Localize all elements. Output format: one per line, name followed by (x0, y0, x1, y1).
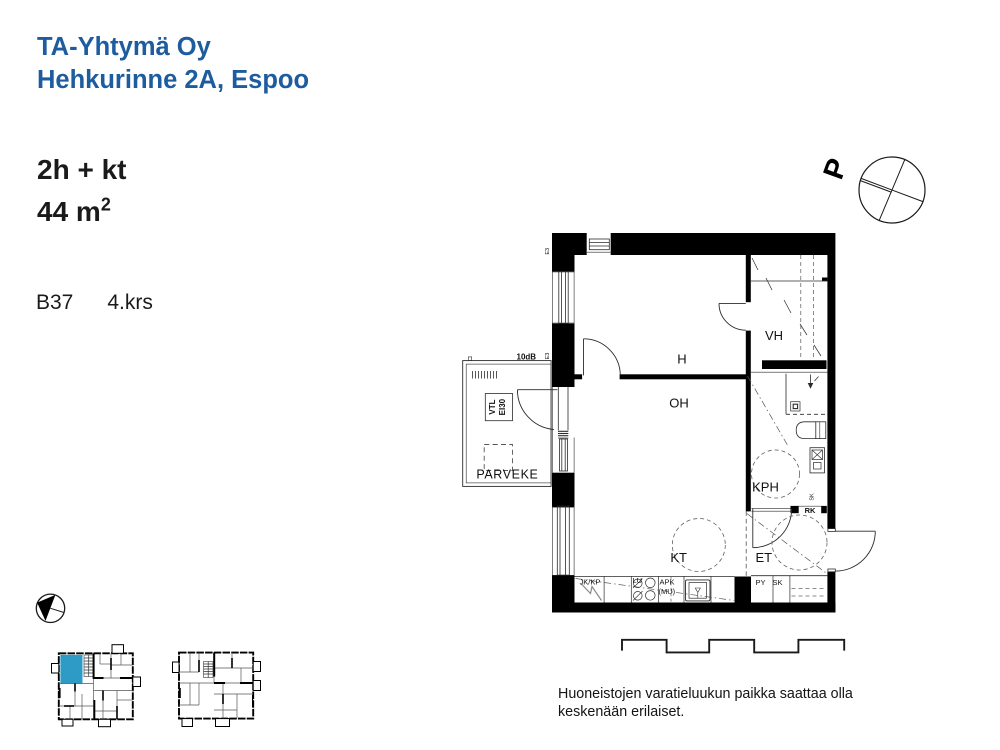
svg-text:10dB: 10dB (517, 352, 537, 361)
svg-text:EI30: EI30 (498, 398, 507, 415)
svg-text:KT: KT (670, 550, 687, 565)
svg-text:ET: ET (755, 550, 772, 565)
svg-text:RK: RK (805, 506, 816, 515)
svg-text:SK: SK (810, 493, 816, 501)
svg-text:PARVEKE: PARVEKE (476, 468, 538, 482)
svg-text:E3: E3 (545, 353, 551, 360)
svg-text:LU: LU (633, 576, 643, 585)
svg-text:OH: OH (669, 396, 689, 411)
svg-text:SK: SK (773, 578, 783, 587)
svg-text:P: P (818, 154, 855, 183)
svg-text:KPH: KPH (752, 480, 779, 495)
svg-text:H: H (677, 352, 686, 367)
svg-text:PY: PY (756, 578, 766, 587)
svg-text:VTL: VTL (488, 399, 497, 414)
svg-text:JK/KP: JK/KP (580, 578, 601, 587)
svg-text:E3: E3 (545, 248, 551, 255)
svg-text:APK: APK (660, 578, 675, 587)
svg-text:VH: VH (765, 328, 783, 343)
svg-text:(MU): (MU) (659, 587, 676, 596)
